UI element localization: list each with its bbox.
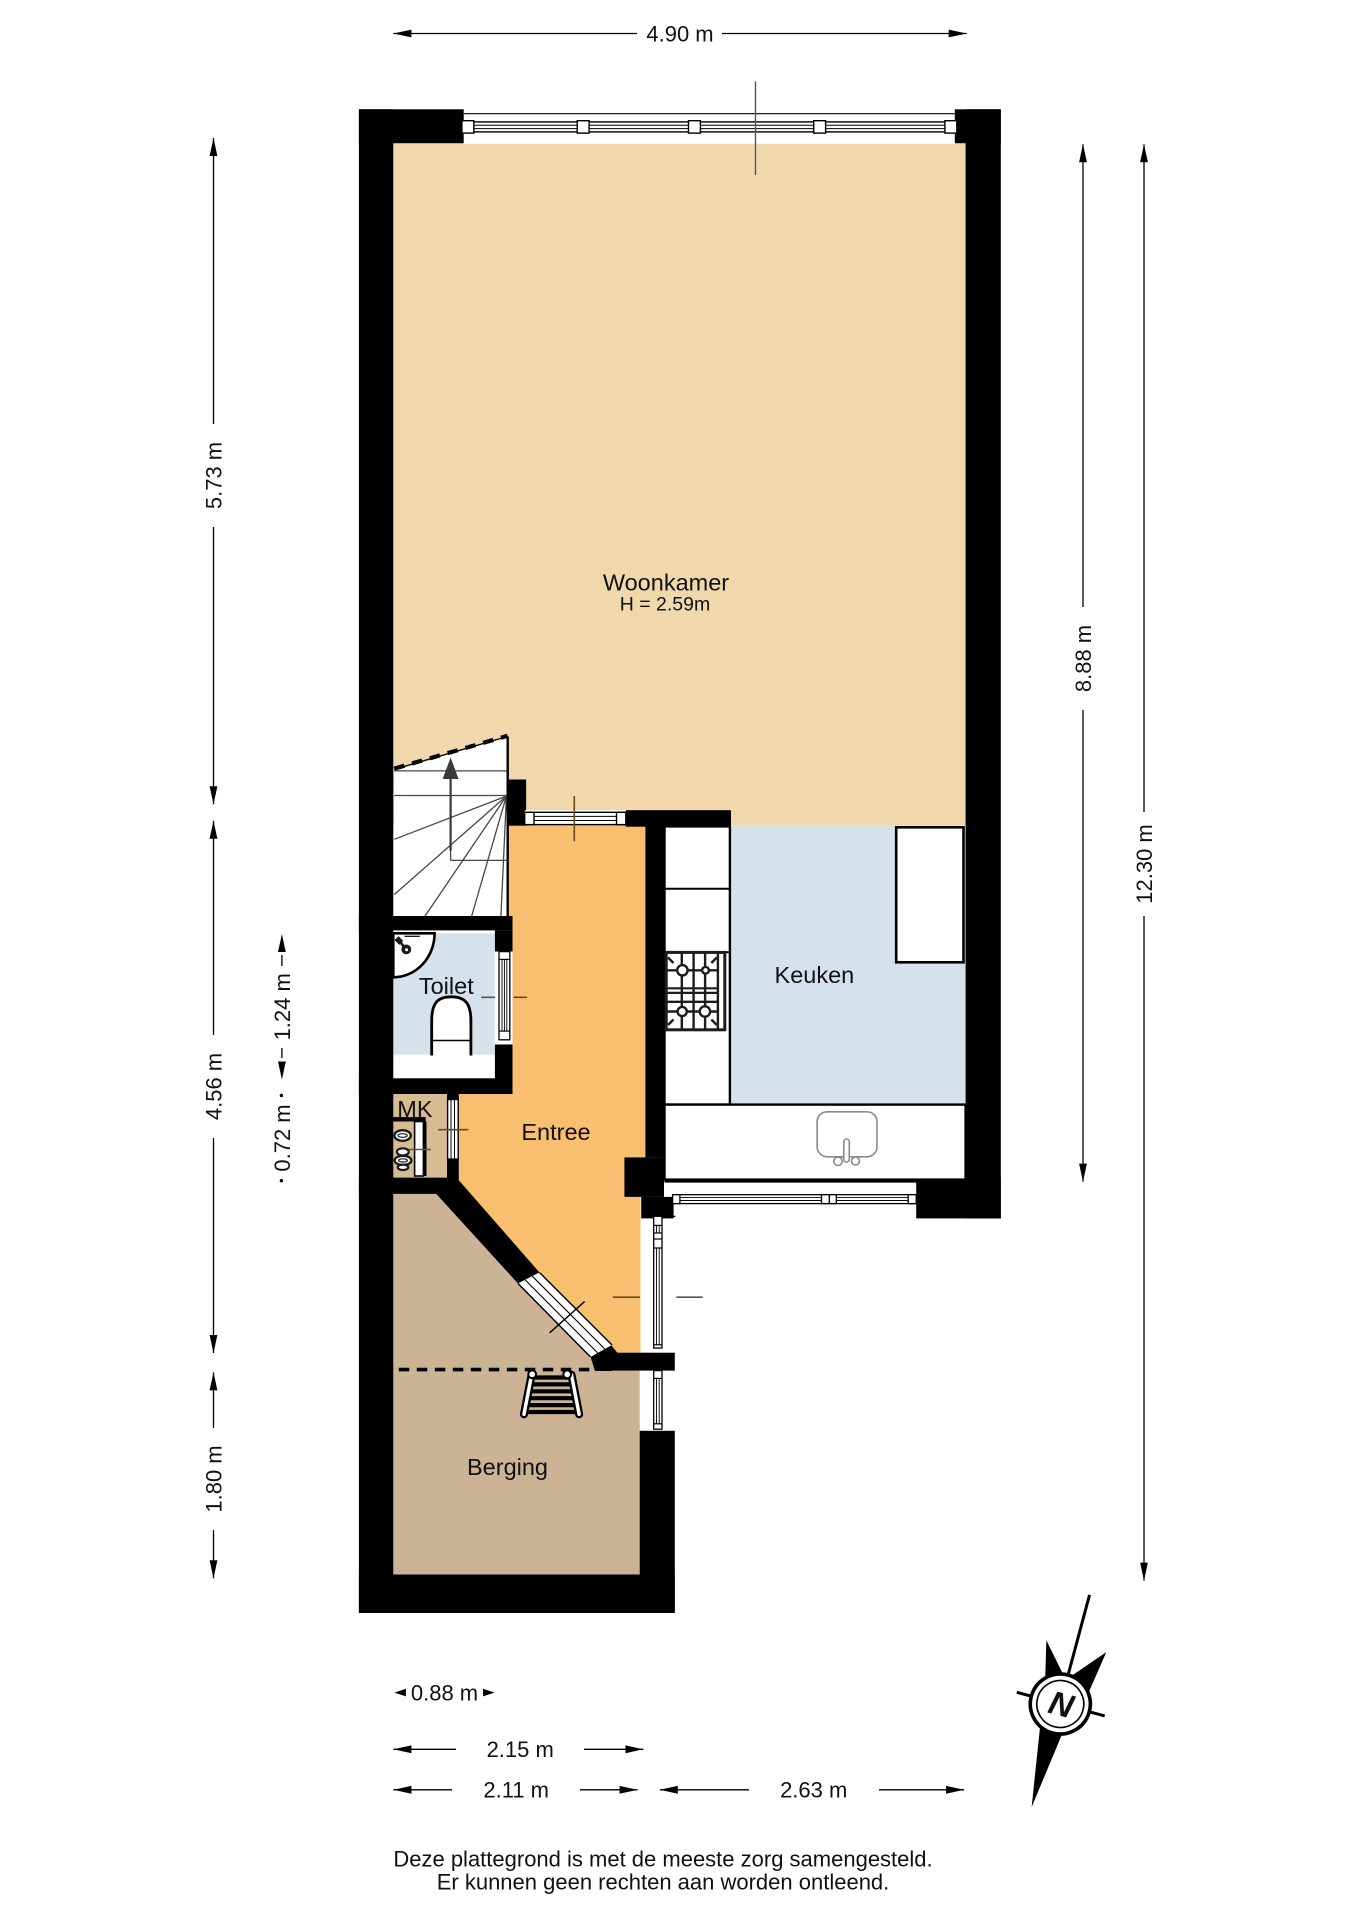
svg-text:2.11 m: 2.11 m [483, 1778, 549, 1803]
svg-text:Berging: Berging [467, 1454, 548, 1480]
svg-text:Keuken: Keuken [775, 962, 855, 988]
svg-text:2.15 m: 2.15 m [487, 1737, 554, 1762]
svg-text:1.80 m: 1.80 m [201, 1445, 226, 1512]
svg-text:Entree: Entree [521, 1119, 590, 1145]
svg-text:4.56 m: 4.56 m [201, 1053, 226, 1120]
svg-text:2.63 m: 2.63 m [780, 1778, 847, 1803]
svg-text:Woonkamer: Woonkamer [603, 569, 729, 595]
svg-text:0.88 m: 0.88 m [411, 1681, 478, 1706]
svg-text:0.72 m: 0.72 m [270, 1104, 295, 1171]
svg-text:MK: MK [397, 1096, 433, 1122]
svg-text:Deze plattegrond is met de mee: Deze plattegrond is met de meeste zorg s… [393, 1847, 932, 1872]
svg-text:12.30 m: 12.30 m [1132, 824, 1157, 904]
svg-text:Er kunnen geen rechten aan wor: Er kunnen geen rechten aan worden ontlee… [437, 1869, 890, 1894]
svg-text:H = 2.59m: H = 2.59m [620, 594, 711, 616]
svg-text:Toilet: Toilet [419, 973, 474, 999]
svg-text:5.73 m: 5.73 m [201, 442, 226, 509]
svg-text:8.88 m: 8.88 m [1071, 625, 1096, 692]
svg-text:1.24 m: 1.24 m [270, 973, 295, 1040]
svg-text:4.90 m: 4.90 m [646, 21, 713, 46]
